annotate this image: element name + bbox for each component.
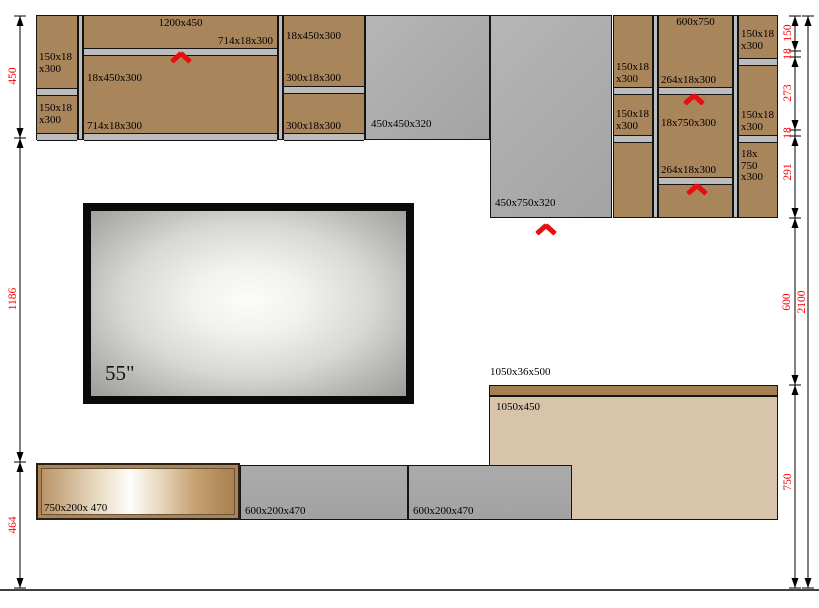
cabinet-size-label: 600x200x470 bbox=[245, 505, 306, 517]
shelf-size-label: 150x18 x300 bbox=[39, 103, 77, 126]
annotation-arrow-icon bbox=[684, 93, 704, 107]
dimension-value: 150 bbox=[782, 24, 794, 41]
panel-size-label: 450x450x320 bbox=[371, 119, 432, 131]
tall-cabinet-left-column: 150x18 x300 150x18 x300 bbox=[613, 15, 653, 218]
annotation-arrow-icon bbox=[536, 223, 556, 237]
shelf-size-label: 264x18x300 bbox=[661, 165, 716, 177]
countertop-board bbox=[489, 385, 778, 396]
side-panel-size-label: 18x750x300 bbox=[661, 118, 716, 130]
dimension-value-overall: 2100 bbox=[796, 291, 808, 314]
cabinet-size-label: 600x750 bbox=[659, 17, 732, 29]
shelf-size-label: 150x18 x300 bbox=[616, 62, 652, 85]
shelf-board bbox=[739, 135, 777, 143]
dimension-value: 750 bbox=[782, 473, 794, 490]
bottom-board bbox=[37, 133, 77, 141]
tall-cabinet-right-column: 150x18 x300 150x18 x300 18x 750 x300 bbox=[738, 15, 778, 218]
tv-size-label: 55" bbox=[105, 361, 135, 386]
side-panel-size-label: 18x450x300 bbox=[87, 73, 142, 85]
panel-size-label: 450x750x320 bbox=[495, 198, 556, 210]
shelf-board bbox=[739, 58, 777, 66]
dimension-value: 600 bbox=[781, 293, 793, 310]
bottom-board bbox=[284, 133, 364, 141]
tv-55-inch: 55" bbox=[83, 203, 414, 404]
side-panel-750: 450x750x320 bbox=[490, 15, 612, 218]
shelf-size-label: 300x18x300 bbox=[286, 121, 341, 133]
shelf-board bbox=[284, 86, 364, 94]
shelf-board bbox=[37, 88, 77, 96]
shelf-size-label: 150x18 x300 bbox=[741, 29, 777, 52]
dimension-value: 291 bbox=[782, 163, 794, 180]
annotation-arrow-icon bbox=[687, 183, 707, 197]
side-panel-size-label: 18x450x300 bbox=[286, 31, 341, 43]
shelf-size-label: 150x18 x300 bbox=[741, 110, 777, 133]
cabinet-size-label: 750x200x 470 bbox=[44, 502, 107, 514]
annotation-arrow-icon bbox=[171, 51, 191, 65]
panel-size-label: 1050x450 bbox=[496, 402, 540, 414]
base-cabinet-1: 600x200x470 bbox=[240, 465, 408, 520]
upper-right-cabinet: 18x450x300 300x18x300 300x18x300 bbox=[283, 15, 365, 140]
cabinet-size-label: 600x200x470 bbox=[413, 505, 474, 517]
dimension-value: 273 bbox=[782, 84, 794, 101]
shelf-board bbox=[614, 87, 652, 95]
countertop-size-label: 1050x36x500 bbox=[490, 367, 551, 379]
shelf-size-label: 714x18x300 bbox=[87, 121, 142, 133]
dimension-value: 464 bbox=[7, 516, 19, 533]
shelf-size-label: 300x18x300 bbox=[286, 73, 341, 85]
shelf-size-label: 714x18x300 bbox=[218, 36, 273, 48]
upper-wide-cabinet: 1200x450 714x18x300 18x450x300 714x18x30… bbox=[83, 15, 278, 140]
side-panel-size-label: 18x 750 x300 bbox=[741, 149, 769, 184]
shelf-size-label: 150x18 x300 bbox=[616, 109, 652, 132]
shelf-size-label: 264x18x300 bbox=[661, 75, 716, 87]
shelf-size-label: 150x18 x300 bbox=[39, 52, 77, 75]
base-cabinet-2: 600x200x470 bbox=[408, 465, 572, 520]
base-drawer-cabinet: 750x200x 470 bbox=[36, 463, 240, 520]
dimension-value: 450 bbox=[7, 67, 19, 84]
furniture-elevation-drawing: 150x18 x300 150x18 x300 1200x450 714x18x… bbox=[0, 0, 819, 608]
dimension-value: 18 bbox=[782, 48, 794, 60]
shelf-board bbox=[614, 135, 652, 143]
dimension-value: 1186 bbox=[7, 288, 19, 311]
bottom-board bbox=[84, 133, 277, 141]
cabinet-size-label: 1200x450 bbox=[84, 18, 277, 30]
side-panel-450: 450x450x320 bbox=[365, 15, 490, 140]
upper-left-narrow-cabinet: 150x18 x300 150x18 x300 bbox=[36, 15, 78, 140]
dimension-value: 18 bbox=[782, 127, 794, 139]
